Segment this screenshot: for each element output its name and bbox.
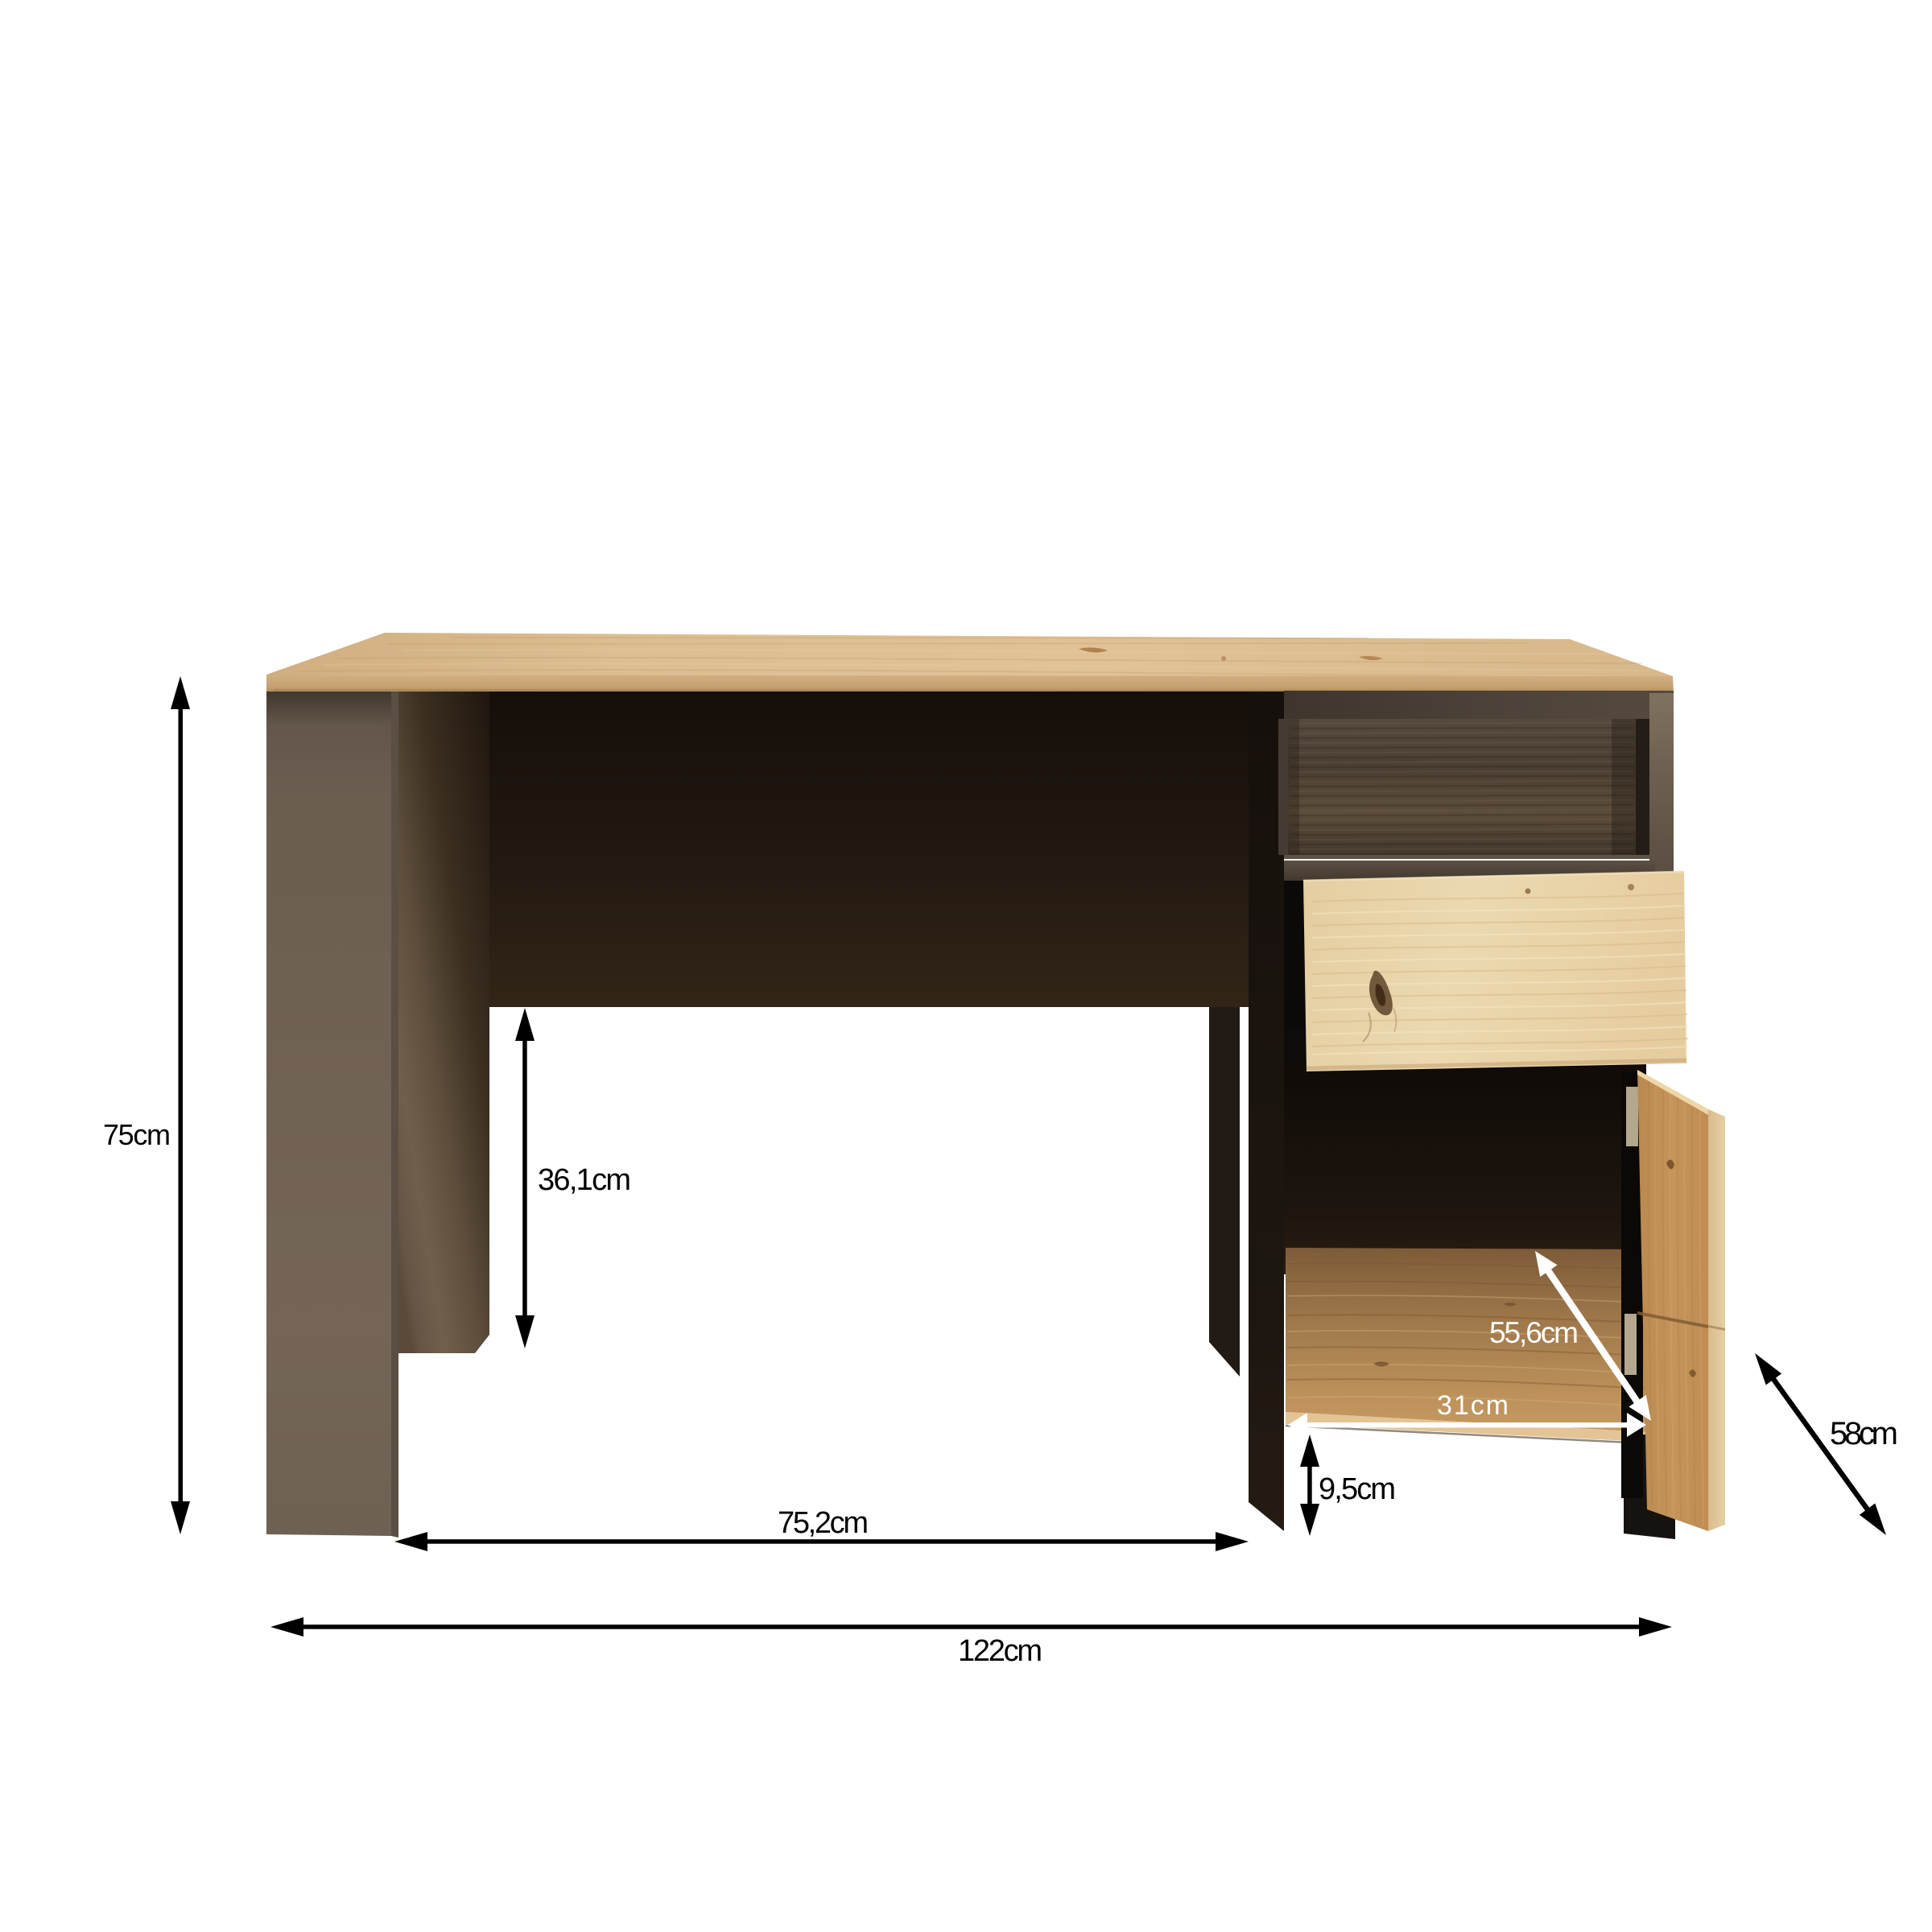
- svg-text:75cm: 75cm: [103, 1118, 171, 1151]
- svg-text:9,5cm: 9,5cm: [1319, 1472, 1396, 1506]
- svg-text:122cm: 122cm: [958, 1634, 1042, 1668]
- svg-text:75,2cm: 75,2cm: [778, 1506, 869, 1540]
- svg-text:36,1cm: 36,1cm: [538, 1163, 631, 1197]
- svg-text:31cm: 31cm: [1437, 1390, 1509, 1421]
- svg-text:58cm: 58cm: [1830, 1416, 1898, 1451]
- svg-text:55,6cm: 55,6cm: [1489, 1316, 1579, 1349]
